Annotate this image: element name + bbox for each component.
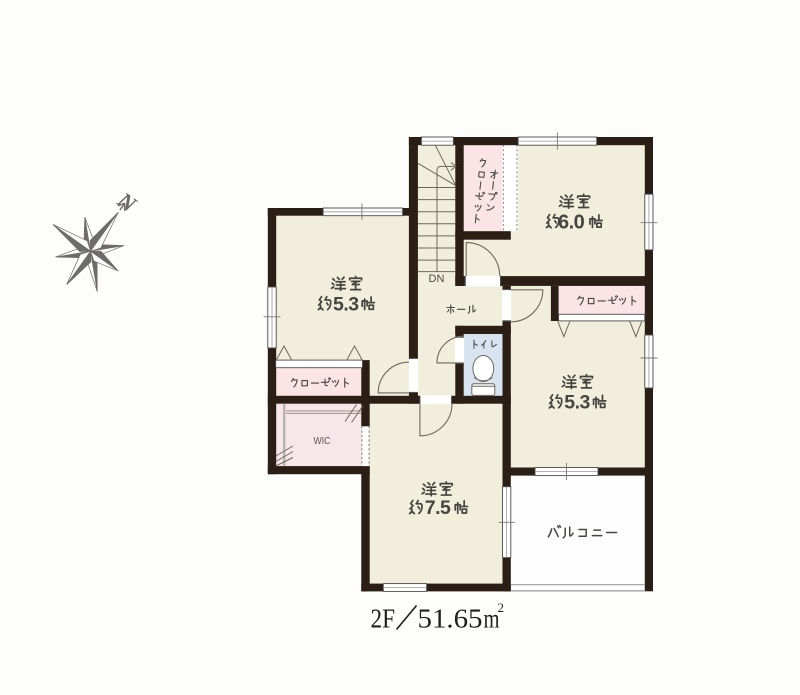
svg-text:5.3: 5.3 bbox=[333, 293, 359, 315]
svg-text:WIC: WIC bbox=[314, 435, 331, 447]
svg-text:2: 2 bbox=[498, 600, 505, 615]
svg-text:5.3: 5.3 bbox=[564, 392, 590, 414]
svg-text:6.0: 6.0 bbox=[558, 212, 585, 234]
svg-text:51.65: 51.65 bbox=[418, 604, 483, 634]
svg-text:2F: 2F bbox=[371, 604, 396, 634]
svg-text:DN: DN bbox=[429, 273, 445, 285]
svg-text:7.5: 7.5 bbox=[425, 497, 451, 519]
